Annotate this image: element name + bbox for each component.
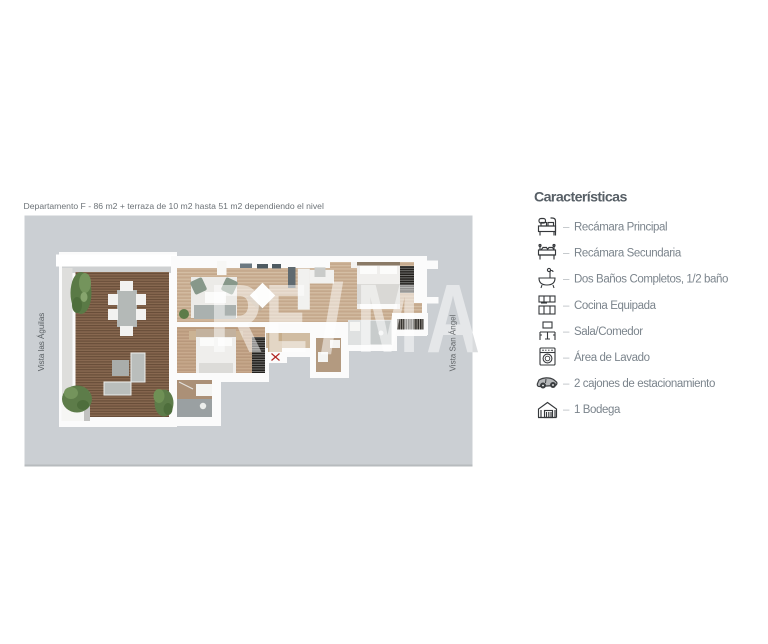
svg-text:Vista San Ángel: Vista San Ángel xyxy=(449,314,458,371)
svg-text:Área de Lavado: Área de Lavado xyxy=(574,351,650,364)
svg-text:–: – xyxy=(563,378,570,390)
svg-text:–: – xyxy=(563,352,570,364)
svg-text:E: E xyxy=(265,264,308,373)
svg-text:/: / xyxy=(320,264,344,373)
svg-text:Dos Baños Completos, 1/2 baño: Dos Baños Completos, 1/2 baño xyxy=(574,274,728,286)
svg-text:Sala/Comedor: Sala/Comedor xyxy=(574,326,643,338)
svg-text:Recámara Principal: Recámara Principal xyxy=(574,222,667,234)
svg-text:Cocina Equipada: Cocina Equipada xyxy=(574,300,657,312)
svg-text:–: – xyxy=(563,248,570,260)
svg-text:–: – xyxy=(563,300,570,312)
svg-text:R: R xyxy=(209,264,263,373)
svg-text:–: – xyxy=(563,222,570,234)
svg-text:–: – xyxy=(563,326,570,338)
svg-text:Recámara Secundaria: Recámara Secundaria xyxy=(574,248,682,260)
svg-text:M: M xyxy=(356,264,419,373)
svg-text:Departamento F - 86 m2 + terra: Departamento F - 86 m2 + terraza de 10 m… xyxy=(24,201,324,211)
svg-text:2 cajones de estacionamiento: 2 cajones de estacionamiento xyxy=(574,378,715,390)
svg-text:–: – xyxy=(563,274,570,286)
svg-text:Vista las Águilas: Vista las Águilas xyxy=(37,313,46,372)
svg-text:1 Bodega: 1 Bodega xyxy=(574,404,621,416)
svg-text:–: – xyxy=(563,404,570,416)
svg-text:Características: Características xyxy=(534,190,627,206)
